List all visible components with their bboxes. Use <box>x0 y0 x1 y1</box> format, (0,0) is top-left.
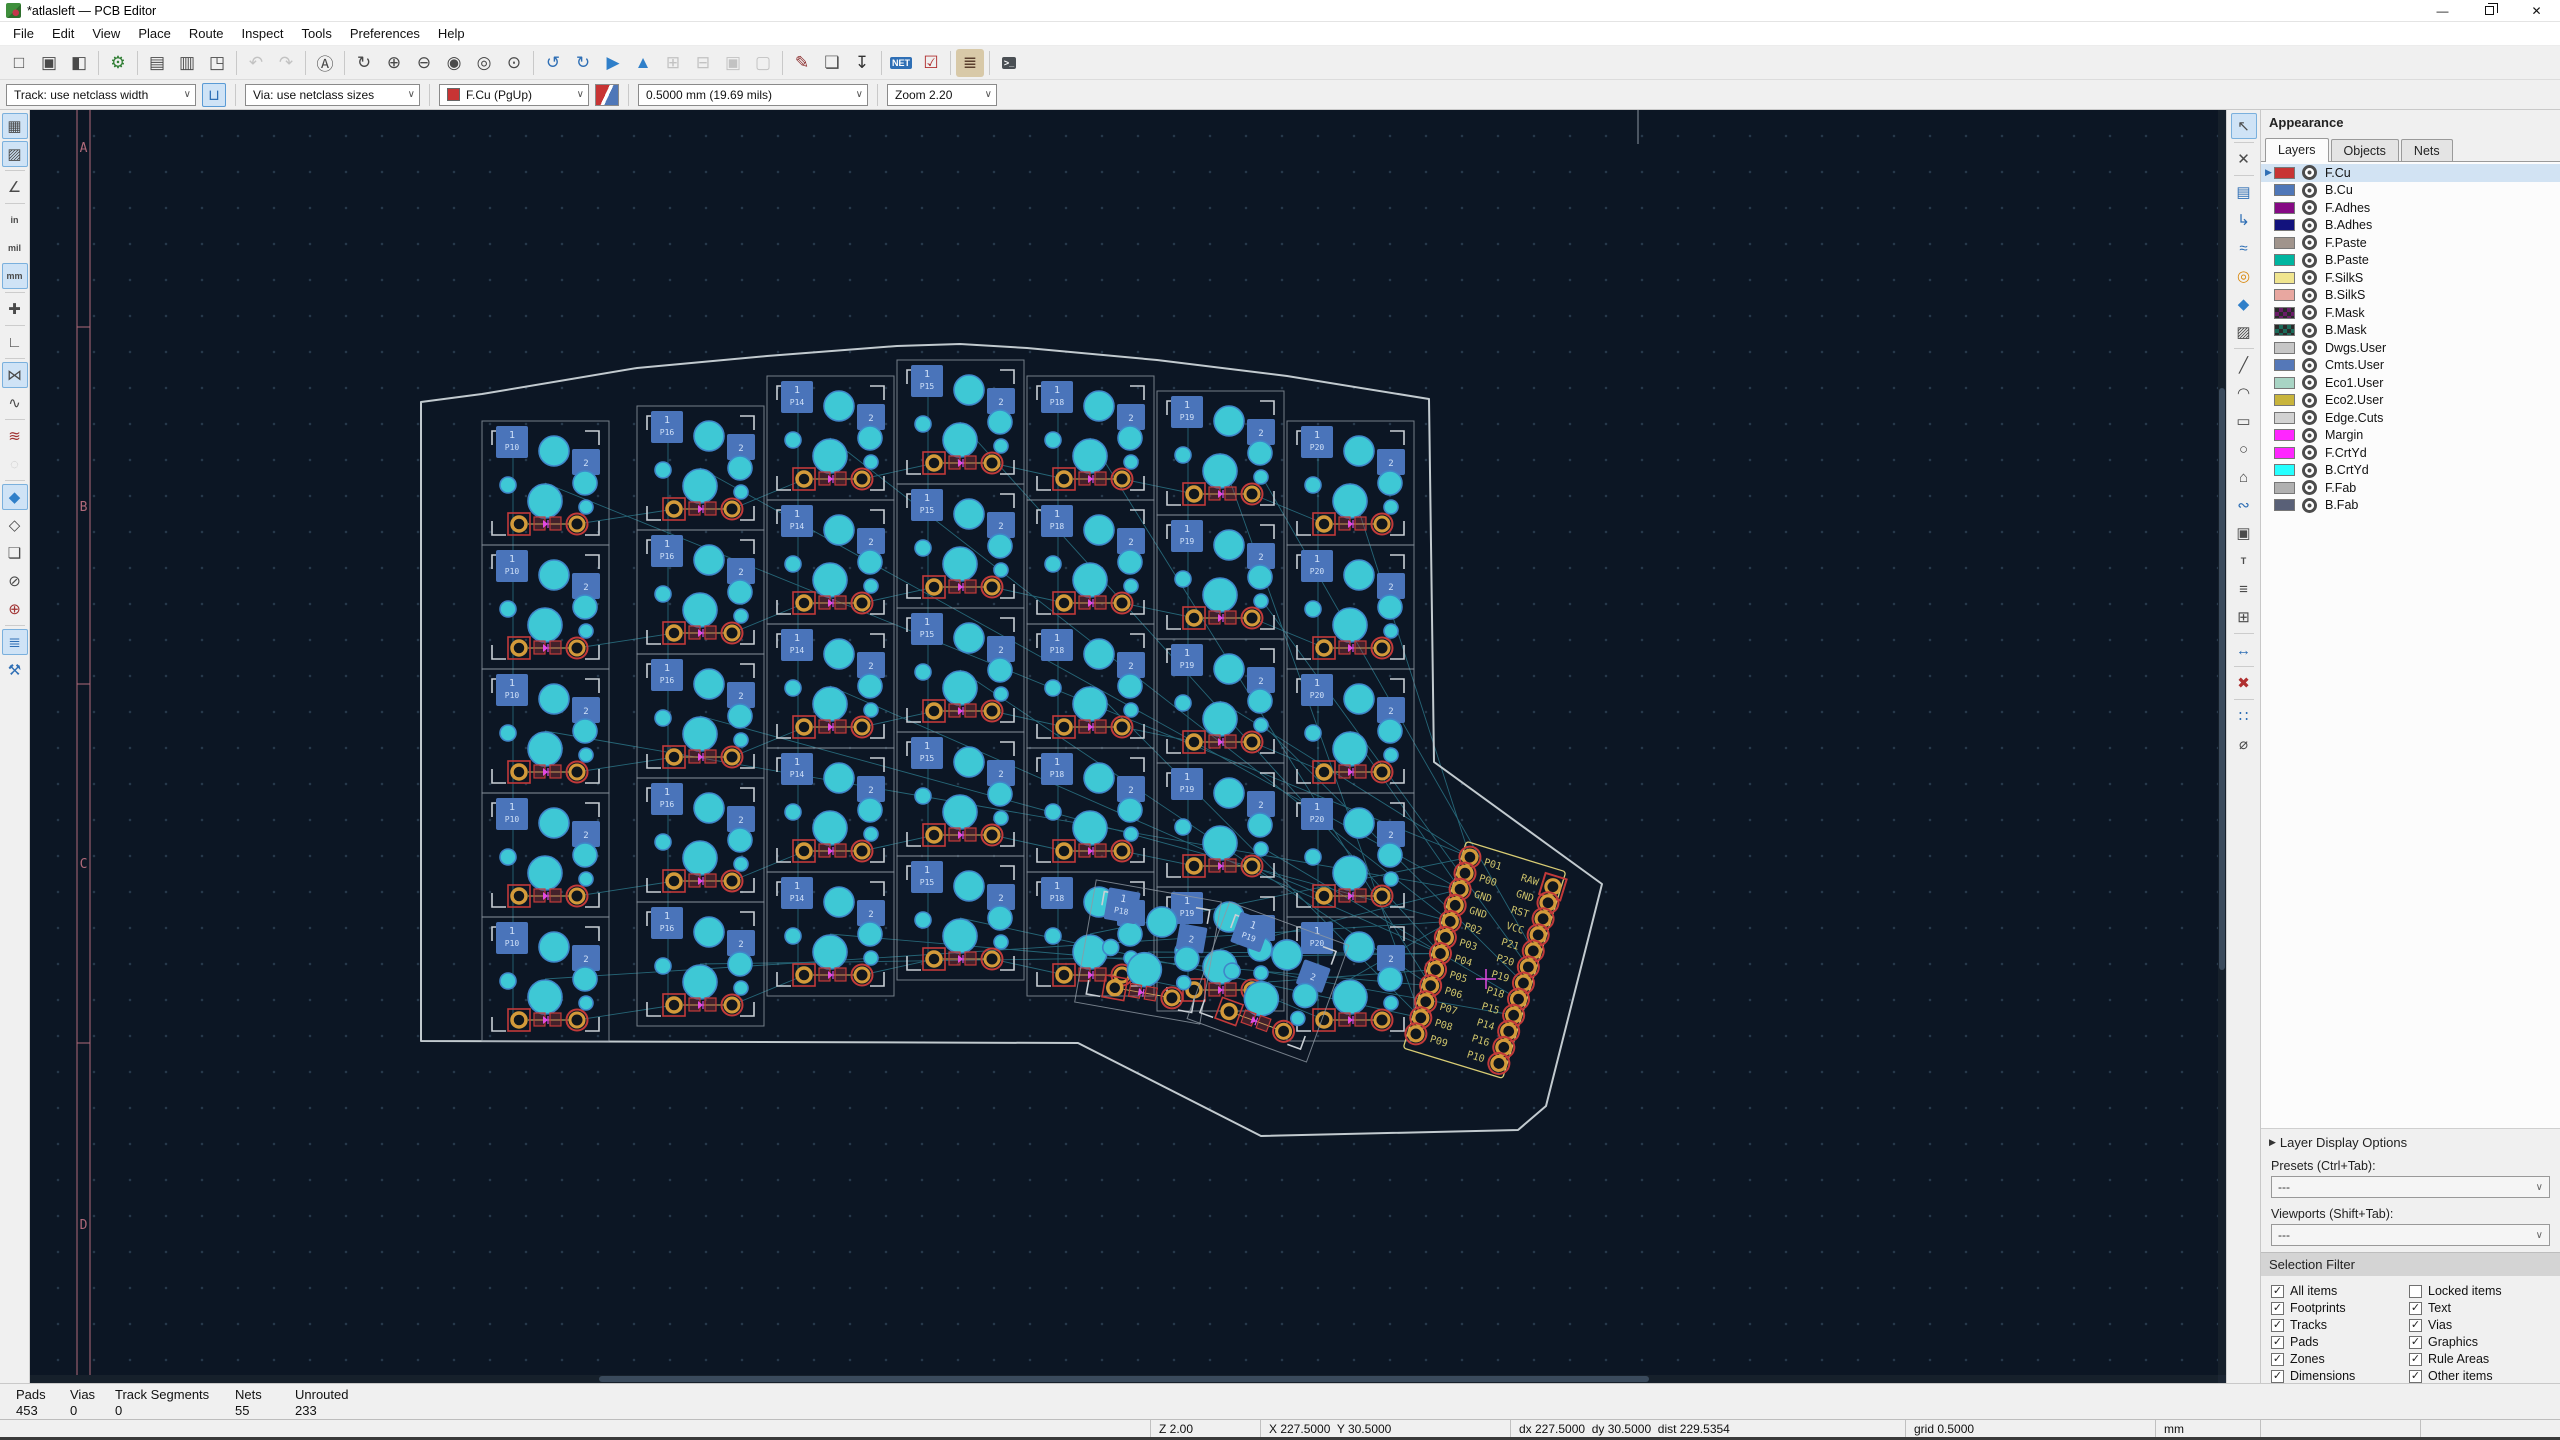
highlight-local-ratsnest[interactable]: ✕ <box>2231 146 2257 172</box>
visibility-eye-icon[interactable] <box>2302 165 2317 180</box>
layer-row-b.silks[interactable]: B.SilkS <box>2261 287 2560 305</box>
layer-name: B.Adhes <box>2325 218 2372 232</box>
close-button[interactable]: ✕ <box>2513 0 2560 21</box>
visibility-eye-icon[interactable] <box>2302 235 2317 250</box>
svg-text:1: 1 <box>664 787 670 798</box>
appearance-title: Appearance <box>2261 110 2560 134</box>
checkbox[interactable] <box>2409 1285 2422 1298</box>
controller-pin-label: P04 <box>1453 954 1473 970</box>
via-outline-mode[interactable]: ⊘ <box>2 568 28 594</box>
limit-tracks-45[interactable]: ∟ <box>2 329 28 355</box>
svg-text:2: 2 <box>998 770 1003 780</box>
track-width-value: Track: use netclass width <box>14 88 148 102</box>
show-ratsnest[interactable]: ⋈ <box>2 362 28 388</box>
menu-edit[interactable]: Edit <box>43 23 83 44</box>
svg-text:2: 2 <box>1128 538 1133 548</box>
crosshair-cursor[interactable]: ✚ <box>2 296 28 322</box>
key-footprint[interactable]: 1P202 <box>1287 793 1414 917</box>
svg-text:1: 1 <box>1054 385 1060 396</box>
svg-text:1: 1 <box>664 539 670 550</box>
svg-text:P15: P15 <box>920 630 935 639</box>
layer-pair-toggle[interactable] <box>595 84 619 106</box>
svg-text:1: 1 <box>1184 524 1190 535</box>
pad-display-mode[interactable]: ◌ <box>2 451 28 477</box>
via-size-value: Via: use netclass sizes <box>253 88 374 102</box>
group[interactable]: ⊞ <box>659 49 687 77</box>
add-footprint[interactable]: ▤ <box>2231 179 2257 205</box>
tab-nets[interactable]: Nets <box>2401 139 2453 161</box>
draw-rectangle[interactable]: ▭ <box>2231 408 2257 434</box>
svg-text:1: 1 <box>509 678 515 689</box>
rotate-ccw[interactable]: ↺ <box>539 49 567 77</box>
menu-inspect[interactable]: Inspect <box>233 23 293 44</box>
key-footprint[interactable]: 1P202 <box>1287 545 1414 669</box>
visibility-eye-icon[interactable] <box>2302 253 2317 268</box>
controller-pin-label: P00 <box>1477 873 1497 889</box>
svg-text:2: 2 <box>738 444 743 454</box>
filter-tracks[interactable]: ✓Tracks <box>2271 1318 2409 1332</box>
via-size-select[interactable]: Via: use netclass sizes ∨ <box>245 84 420 106</box>
layer-row-f.silks[interactable]: F.SilkS <box>2261 269 2560 287</box>
status-extra-2 <box>2420 1420 2560 1437</box>
key-footprint[interactable]: 1P162 <box>637 530 764 654</box>
controller-pin-label: GND <box>1473 889 1493 905</box>
grid-select[interactable]: 0.5000 mm (19.69 mils) ∨ <box>638 84 868 106</box>
unlock[interactable]: ▢ <box>749 49 777 77</box>
svg-text:P16: P16 <box>660 924 675 933</box>
route-differential-pairs[interactable]: ≈ <box>2231 235 2257 261</box>
layer-color-swatch[interactable] <box>2274 464 2295 476</box>
checkbox[interactable]: ✓ <box>2409 1370 2422 1383</box>
layer-row-edge.cuts[interactable]: Edge.Cuts <box>2261 409 2560 427</box>
layer-color-swatch[interactable] <box>2274 254 2295 266</box>
layer-color-swatch[interactable] <box>2274 412 2295 424</box>
presets-select[interactable]: --- ∨ <box>2271 1176 2550 1198</box>
key-footprint[interactable]: 1P142 <box>767 748 894 872</box>
chevron-down-icon: ∨ <box>178 89 191 100</box>
layer-color-swatch[interactable] <box>2274 324 2295 336</box>
layer-color-swatch[interactable] <box>2274 499 2295 511</box>
layer-name: B.CrtYd <box>2325 463 2369 477</box>
svg-text:2: 2 <box>868 538 873 548</box>
key-footprint[interactable]: 1P192 <box>1157 515 1284 639</box>
save-board[interactable]: ◧ <box>65 49 93 77</box>
layer-color-swatch[interactable] <box>2274 429 2295 441</box>
key-footprint[interactable]: 1P202 <box>1287 421 1414 545</box>
active-layer-select[interactable]: F.Cu (PgUp) ∨ <box>439 84 589 106</box>
filter-all-items[interactable]: ✓All items <box>2271 1284 2409 1298</box>
checkbox-label: Graphics <box>2428 1335 2478 1349</box>
selection-filter: ✓All itemsLocked items✓Footprints✓Text✓T… <box>2261 1276 2560 1383</box>
left-toolbar: ▦▨∠inmilmm✚∟⋈∿≋◌◆◇❏⊘⊕≣⚒ <box>0 110 30 1383</box>
svg-text:1: 1 <box>1314 802 1320 813</box>
tab-objects[interactable]: Objects <box>2331 139 2399 161</box>
svg-text:2: 2 <box>738 816 743 826</box>
layer-color-swatch[interactable] <box>2274 289 2295 301</box>
svg-text:2: 2 <box>998 646 1003 656</box>
layer-color-swatch[interactable] <box>2274 307 2295 319</box>
add-table[interactable]: ⊞ <box>2231 604 2257 630</box>
plot[interactable]: ◳ <box>203 49 231 77</box>
controller-pin-label: P21 <box>1500 937 1520 953</box>
svg-text:P18: P18 <box>1050 522 1065 531</box>
svg-text:P14: P14 <box>790 894 805 903</box>
layer-color-swatch[interactable] <box>2274 342 2295 354</box>
zone-fill-mode[interactable]: ◆ <box>2 484 28 510</box>
svg-text:1: 1 <box>664 415 670 426</box>
visibility-eye-icon[interactable] <box>2302 428 2317 443</box>
layer-color-swatch[interactable] <box>2274 482 2295 494</box>
svg-text:P15: P15 <box>920 878 935 887</box>
active-layer-value: F.Cu (PgUp) <box>466 88 532 102</box>
layer-color-swatch[interactable] <box>2274 237 2295 249</box>
footprint-browser[interactable]: ❏ <box>818 49 846 77</box>
layer-color-swatch[interactable] <box>2274 359 2295 371</box>
zoom-in[interactable]: ⊕ <box>380 49 408 77</box>
svg-text:2: 2 <box>1258 429 1263 439</box>
refresh-view[interactable]: ↻ <box>350 49 378 77</box>
layer-row-b.paste[interactable]: B.Paste <box>2261 252 2560 270</box>
svg-text:1: 1 <box>1184 648 1190 659</box>
checkbox[interactable]: ✓ <box>2271 1302 2284 1315</box>
layer-row-f.adhes[interactable]: F.Adhes <box>2261 199 2560 217</box>
svg-text:P16: P16 <box>660 676 675 685</box>
toggle-grid[interactable]: ▦ <box>2 113 28 139</box>
track-outline-mode[interactable]: ⊕ <box>2 596 28 622</box>
layer-color-swatch[interactable] <box>2274 272 2295 284</box>
layer-row-f.crtyd[interactable]: F.CrtYd <box>2261 444 2560 462</box>
canvas-vertical-scrollbar[interactable] <box>2218 110 2226 1375</box>
visibility-eye-icon[interactable] <box>2302 463 2317 478</box>
svg-text:P20: P20 <box>1310 567 1325 576</box>
print[interactable]: ▥ <box>173 49 201 77</box>
checkbox[interactable]: ✓ <box>2409 1336 2422 1349</box>
controller-pin-label: P18 <box>1485 985 1505 1001</box>
layer-row-dwgs.user[interactable]: Dwgs.User <box>2261 339 2560 357</box>
svg-text:P14: P14 <box>790 770 805 779</box>
units-inches[interactable]: in <box>2 207 28 233</box>
visibility-eye-icon[interactable] <box>2302 218 2317 233</box>
visibility-eye-icon[interactable] <box>2302 305 2317 320</box>
status-message-bar: Pads453Vias0Track Segments0Nets55Unroute… <box>0 1383 2560 1419</box>
visibility-eye-icon[interactable] <box>2302 340 2317 355</box>
key-footprint[interactable]: 1P142 <box>767 500 894 624</box>
toggle-grid-overrides[interactable]: ▨ <box>2 141 28 167</box>
design-rules-checker[interactable]: ☑ <box>917 49 945 77</box>
svg-text:P20: P20 <box>1310 443 1325 452</box>
svg-text:2: 2 <box>1128 786 1133 796</box>
visibility-eye-icon[interactable] <box>2302 270 2317 285</box>
key-footprint[interactable]: 1P192 <box>1157 391 1284 515</box>
update-pcb-from-schematic[interactable]: ↧ <box>848 49 876 77</box>
visibility-eye-icon[interactable] <box>2302 375 2317 390</box>
grid-origin[interactable]: ∷ <box>2231 703 2257 729</box>
svg-text:1: 1 <box>664 663 670 674</box>
layers-manager[interactable]: ≣ <box>2 629 28 655</box>
checkbox[interactable]: ✓ <box>2271 1353 2284 1366</box>
filter-pads[interactable]: ✓Pads <box>2271 1335 2409 1349</box>
titlebar: *atlasleft — PCB Editor — ✕ <box>0 0 2560 22</box>
chevron-down-icon: ∨ <box>402 89 415 100</box>
visibility-eye-icon[interactable] <box>2302 445 2317 460</box>
checkbox[interactable]: ✓ <box>2409 1353 2422 1366</box>
zoom-to-objects[interactable]: ◎ <box>470 49 498 77</box>
key-footprint[interactable]: 1P102 <box>482 545 609 669</box>
layer-row-cmts.user[interactable]: Cmts.User <box>2261 357 2560 375</box>
zoom-select[interactable]: Zoom 2.20 ∨ <box>887 84 997 106</box>
layer-display-options[interactable]: ▶ Layer Display Options <box>2261 1128 2560 1156</box>
visibility-eye-icon[interactable] <box>2302 183 2317 198</box>
pcb-editor-window: *atlasleft — PCB Editor — ✕ FileEditView… <box>0 0 2560 1440</box>
canvas-area: ABCD1P1021P1021P1021P1021P1021P1621P1621… <box>30 110 2226 1383</box>
checkbox[interactable]: ✓ <box>2409 1319 2422 1332</box>
add-rule-area[interactable]: ▨ <box>2231 319 2257 345</box>
svg-text:1: 1 <box>794 509 800 520</box>
visibility-eye-icon[interactable] <box>2302 393 2317 408</box>
add-image[interactable]: ▣ <box>2231 520 2257 546</box>
grid-value: 0.5000 mm (19.69 mils) <box>646 88 772 102</box>
svg-text:P20: P20 <box>1310 815 1325 824</box>
svg-text:1: 1 <box>794 385 800 396</box>
controller-pin-label: P05 <box>1448 970 1468 986</box>
svg-text:1: 1 <box>1184 772 1190 783</box>
filter-footprints[interactable]: ✓Footprints <box>2271 1301 2409 1315</box>
filter-graphics[interactable]: ✓Graphics <box>2409 1335 2560 1349</box>
layer-row-f.paste[interactable]: F.Paste <box>2261 234 2560 252</box>
svg-text:2: 2 <box>1388 831 1393 841</box>
select-tool[interactable]: ↖ <box>2231 113 2257 139</box>
layer-row-f.fab[interactable]: F.Fab <box>2261 479 2560 497</box>
layer-name: Eco2.User <box>2325 393 2383 407</box>
layer-row-b.mask[interactable]: B.Mask <box>2261 322 2560 340</box>
layer-row-eco1.user[interactable]: Eco1.User <box>2261 374 2560 392</box>
add-text[interactable]: T <box>2231 548 2257 574</box>
svg-text:P14: P14 <box>790 646 805 655</box>
menu-tools[interactable]: Tools <box>292 23 340 44</box>
layer-name: Edge.Cuts <box>2325 411 2383 425</box>
filter-text[interactable]: ✓Text <box>2409 1301 2560 1315</box>
layer-row-f.mask[interactable]: F.Mask <box>2261 304 2560 322</box>
filter-dimensions[interactable]: ✓Dimensions <box>2271 1369 2409 1383</box>
svg-text:2: 2 <box>738 568 743 578</box>
measure-tool[interactable]: ⌀ <box>2231 731 2257 757</box>
footprint-editor[interactable]: ✎ <box>788 49 816 77</box>
menu-view[interactable]: View <box>83 23 129 44</box>
key-footprint[interactable]: 1P162 <box>637 778 764 902</box>
svg-text:P18: P18 <box>1050 894 1065 903</box>
svg-text:1: 1 <box>1054 757 1060 768</box>
svg-text:1: 1 <box>924 617 930 628</box>
controller-pin-label: P15 <box>1480 1001 1500 1017</box>
checkbox-label: Dimensions <box>2290 1369 2355 1383</box>
controller-pin-label: P19 <box>1490 969 1510 985</box>
restore-button[interactable] <box>2466 0 2513 21</box>
controller-pin-label: P10 <box>1465 1049 1485 1065</box>
menu-preferences[interactable]: Preferences <box>341 23 429 44</box>
track-display-mode[interactable]: ≋ <box>2 423 28 449</box>
draw-bezier[interactable]: ∾ <box>2231 492 2257 518</box>
svg-text:P19: P19 <box>1180 909 1195 918</box>
selection-filter-title: Selection Filter <box>2261 1252 2560 1276</box>
expand-arrow-icon: ▶ <box>2269 1137 2276 1148</box>
svg-text:2: 2 <box>1128 662 1133 672</box>
zone-outline-mode[interactable]: ◇ <box>2 512 28 538</box>
minimize-button[interactable]: — <box>2419 0 2466 21</box>
scripting-console[interactable]: >_ <box>995 49 1023 77</box>
svg-text:P18: P18 <box>1050 646 1065 655</box>
layer-row-b.fab[interactable]: B.Fab <box>2261 497 2560 515</box>
svg-text:P10: P10 <box>505 815 520 824</box>
svg-text:1: 1 <box>509 554 515 565</box>
layer-row-f.cu[interactable]: ▶F.Cu <box>2261 164 2560 182</box>
chevron-down-icon: ∨ <box>571 89 584 100</box>
filter-rule-areas[interactable]: ✓Rule Areas <box>2409 1352 2560 1366</box>
layer-color-swatch[interactable] <box>2274 219 2295 231</box>
sheet-row-label: B <box>80 500 88 515</box>
draw-polygon[interactable]: ⌂ <box>2231 464 2257 490</box>
layer-row-b.cu[interactable]: B.Cu <box>2261 182 2560 200</box>
layer-row-eco2.user[interactable]: Eco2.User <box>2261 392 2560 410</box>
svg-text:P20: P20 <box>1310 691 1325 700</box>
visibility-eye-icon[interactable] <box>2302 288 2317 303</box>
layer-row-b.crtyd[interactable]: B.CrtYd <box>2261 462 2560 480</box>
units-mils[interactable]: mil <box>2 235 28 261</box>
draw-line[interactable]: ╱ <box>2231 352 2257 378</box>
open-board[interactable]: ▣ <box>35 49 63 77</box>
svg-text:P19: P19 <box>1180 661 1195 670</box>
checkbox[interactable]: ✓ <box>2409 1302 2422 1315</box>
checkbox[interactable]: ✓ <box>2271 1336 2284 1349</box>
layer-row-margin[interactable]: Margin <box>2261 427 2560 445</box>
svg-text:2: 2 <box>1388 955 1393 965</box>
redo[interactable]: ↷ <box>272 49 300 77</box>
layer-color-swatch[interactable] <box>2274 447 2295 459</box>
status-pads: Pads453 <box>16 1387 70 1418</box>
plugin-keyboard-placer[interactable]: ≣ <box>956 49 984 77</box>
svg-text:2: 2 <box>738 692 743 702</box>
controller-footprint[interactable]: P01P00GNDGNDP02P03P04P05P06P07P08P09RAWG… <box>1401 841 1569 1080</box>
menu-route[interactable]: Route <box>180 23 233 44</box>
menu-file[interactable]: File <box>4 23 43 44</box>
flip-vertical[interactable]: ▲ <box>629 49 657 77</box>
undo[interactable]: ↶ <box>242 49 270 77</box>
svg-text:1: 1 <box>1184 896 1190 907</box>
checkbox-label: Vias <box>2428 1318 2452 1332</box>
filter-other-items[interactable]: ✓Other items <box>2409 1369 2560 1383</box>
new-board[interactable]: □ <box>5 49 33 77</box>
add-via[interactable]: ◎ <box>2231 263 2257 289</box>
visibility-eye-icon[interactable] <box>2302 200 2317 215</box>
zoom-to-selection[interactable]: ⊙ <box>500 49 528 77</box>
svg-text:2: 2 <box>998 522 1003 532</box>
route-tracks[interactable]: ↳ <box>2231 207 2257 233</box>
svg-text:2: 2 <box>998 398 1003 408</box>
layer-name: B.Cu <box>2325 183 2353 197</box>
footprint-outline-mode[interactable]: ❏ <box>2 540 28 566</box>
lock[interactable]: ▣ <box>719 49 747 77</box>
add-dimension[interactable]: ↔ <box>2231 637 2257 663</box>
properties-panel[interactable]: ⚒ <box>2 657 28 683</box>
add-textbox[interactable]: ≡ <box>2231 576 2257 602</box>
svg-text:1: 1 <box>794 757 800 768</box>
layer-color-swatch[interactable] <box>2274 202 2295 214</box>
filter-vias[interactable]: ✓Vias <box>2409 1318 2560 1332</box>
layer-color-swatch[interactable] <box>2274 377 2295 389</box>
svg-text:2: 2 <box>583 707 588 717</box>
sheet-row-label: D <box>80 1218 88 1233</box>
svg-text:2: 2 <box>1388 707 1393 717</box>
layer-name: F.Fab <box>2325 481 2356 495</box>
checkbox[interactable]: ✓ <box>2271 1285 2284 1298</box>
checkbox-label: Locked items <box>2428 1284 2502 1298</box>
filter-locked-items[interactable]: Locked items <box>2409 1284 2560 1298</box>
zoom-out[interactable]: ⊖ <box>410 49 438 77</box>
visibility-eye-icon[interactable] <box>2302 410 2317 425</box>
visibility-eye-icon[interactable] <box>2302 358 2317 373</box>
svg-text:1: 1 <box>924 369 930 380</box>
flip-horizontal[interactable]: ▶ <box>599 49 627 77</box>
zoom-value: Zoom 2.20 <box>895 88 952 102</box>
ungroup[interactable]: ⊟ <box>689 49 717 77</box>
tab-layers[interactable]: Layers <box>2265 138 2329 162</box>
board-setup[interactable]: ⚙ <box>104 49 132 77</box>
pcb-canvas[interactable]: ABCD1P1021P1021P1021P1021P1021P1621P1621… <box>30 110 2218 1375</box>
presets-value: --- <box>2278 1180 2290 1194</box>
appearance-panel: Appearance LayersObjectsNets ▶F.CuB.CuF.… <box>2260 110 2560 1383</box>
canvas-horizontal-scrollbar[interactable] <box>30 1375 2218 1383</box>
svg-text:P15: P15 <box>920 754 935 763</box>
track-width-select[interactable]: Track: use netclass width ∨ <box>6 84 196 106</box>
add-filled-zone[interactable]: ◆ <box>2231 291 2257 317</box>
appearance-tabs: LayersObjectsNets <box>2261 134 2560 162</box>
draw-arc[interactable]: ◠ <box>2231 380 2257 406</box>
find[interactable]: Ⓐ <box>311 49 339 77</box>
layer-color-swatch[interactable] <box>2274 394 2295 406</box>
layer-color-swatch[interactable] <box>2274 184 2295 196</box>
key-footprint[interactable]: 1P102 <box>482 793 609 917</box>
delete-tool[interactable]: ✖ <box>2231 670 2257 696</box>
checkbox[interactable]: ✓ <box>2271 1319 2284 1332</box>
units-mm[interactable]: mm <box>2 263 28 289</box>
menu-help[interactable]: Help <box>429 23 474 44</box>
status-message <box>0 1420 1150 1437</box>
layer-name: Eco1.User <box>2325 376 2383 390</box>
draw-circle[interactable]: ○ <box>2231 436 2257 462</box>
rotate-cw[interactable]: ↻ <box>569 49 597 77</box>
polar-coordinates[interactable]: ∠ <box>2 174 28 200</box>
visibility-eye-icon[interactable] <box>2302 498 2317 513</box>
visibility-eye-icon[interactable] <box>2302 480 2317 495</box>
layer-color-swatch[interactable] <box>2274 167 2295 179</box>
viewports-select[interactable]: --- ∨ <box>2271 1224 2550 1246</box>
chevron-down-icon: ∨ <box>2536 1230 2543 1241</box>
curved-ratsnest[interactable]: ∿ <box>2 390 28 416</box>
svg-text:1: 1 <box>1314 926 1320 937</box>
svg-text:2: 2 <box>738 940 743 950</box>
layer-row-b.adhes[interactable]: B.Adhes <box>2261 217 2560 235</box>
layer-name: F.CrtYd <box>2325 446 2367 460</box>
net-inspector[interactable]: NET <box>887 49 915 77</box>
status-grid: grid 0.5000 <box>1905 1420 2155 1437</box>
filter-zones[interactable]: ✓Zones <box>2271 1352 2409 1366</box>
visibility-eye-icon[interactable] <box>2302 323 2317 338</box>
page-settings[interactable]: ▤ <box>143 49 171 77</box>
zoom-to-fit[interactable]: ◉ <box>440 49 468 77</box>
svg-text:1: 1 <box>1314 430 1320 441</box>
checkbox[interactable]: ✓ <box>2271 1370 2284 1383</box>
menu-place[interactable]: Place <box>129 23 180 44</box>
track-posture-toggle[interactable]: ⊔ <box>202 83 226 107</box>
